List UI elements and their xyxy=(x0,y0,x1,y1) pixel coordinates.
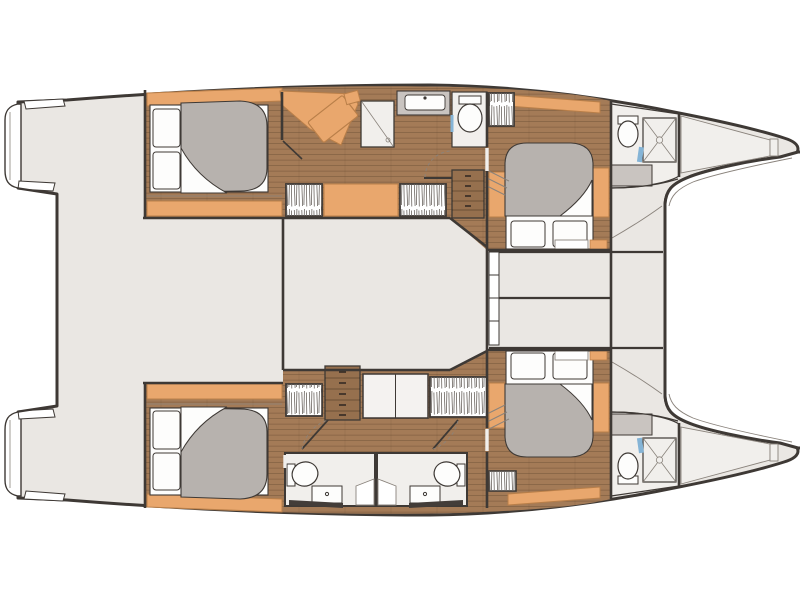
dresser xyxy=(452,170,484,218)
cabinet-strip xyxy=(590,351,607,360)
cabinet-strip xyxy=(147,384,282,399)
cabinet-strip xyxy=(590,240,607,249)
pillow xyxy=(153,453,180,490)
door-accent xyxy=(451,115,454,132)
shower-stall xyxy=(643,118,676,162)
washbasin-counter xyxy=(410,486,440,503)
foredeck-locker xyxy=(555,240,588,249)
floor-plan-canvas xyxy=(0,0,800,600)
bathroom-starboard-aft xyxy=(285,453,375,508)
foredeck-steps xyxy=(489,252,499,345)
bathroom-port-forward xyxy=(611,104,679,188)
cabinet-strip xyxy=(593,383,609,432)
cabinet-strip xyxy=(593,168,609,217)
wc-room-port xyxy=(451,92,488,147)
shower-stall xyxy=(643,438,676,482)
counter xyxy=(611,165,652,186)
toilet xyxy=(618,121,638,147)
faucet xyxy=(423,96,426,99)
pillow xyxy=(511,221,545,247)
toilet xyxy=(618,453,638,479)
dresser xyxy=(325,366,360,420)
counter xyxy=(611,414,652,435)
pillow xyxy=(153,152,180,189)
bathroom-starboard-forward xyxy=(377,453,467,508)
foredeck-locker xyxy=(555,351,588,360)
trampoline xyxy=(665,152,800,448)
cabinet-white xyxy=(363,374,428,418)
washbasin-counter xyxy=(312,486,342,503)
toilet-tank xyxy=(459,96,481,104)
pillow xyxy=(511,353,545,379)
cabinet-strip xyxy=(324,184,398,216)
shower-stall xyxy=(361,101,394,147)
pillow xyxy=(153,411,180,449)
pillow xyxy=(153,109,180,147)
toilet xyxy=(458,104,482,132)
catamaran-floor-plan xyxy=(0,0,800,600)
vanity-sink xyxy=(397,91,450,115)
cockpit-edge xyxy=(18,188,57,412)
bathroom-starboard-bow xyxy=(611,412,679,496)
cabinet-strip xyxy=(147,201,282,216)
